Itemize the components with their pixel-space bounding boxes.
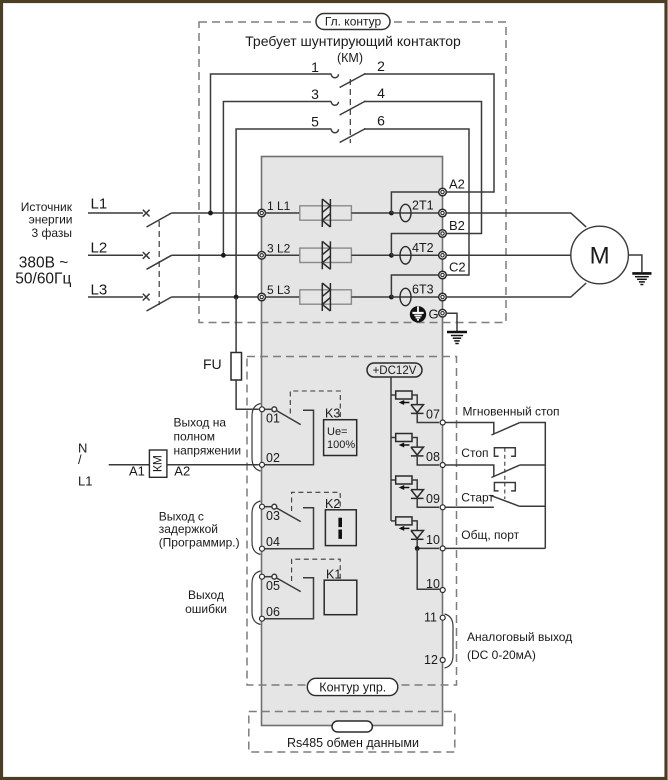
svg-text:4: 4: [377, 85, 385, 101]
svg-text:3 фазы: 3 фазы: [31, 226, 72, 240]
svg-text:КМ: КМ: [150, 455, 164, 472]
svg-text:5 L3: 5 L3: [267, 283, 291, 297]
svg-text:Выход: Выход: [188, 588, 224, 602]
svg-text:4T2: 4T2: [412, 241, 434, 255]
svg-text:05: 05: [266, 579, 280, 593]
svg-text:100%: 100%: [327, 439, 355, 451]
svg-text:6: 6: [377, 113, 385, 129]
svg-text:6T3: 6T3: [412, 283, 434, 297]
svg-text:/: /: [78, 452, 82, 467]
svg-text:09: 09: [426, 492, 440, 506]
svg-text:A2: A2: [174, 464, 190, 479]
svg-text:Общ, порт: Общ, порт: [461, 528, 519, 542]
svg-text:04: 04: [266, 535, 280, 549]
svg-text:G: G: [429, 307, 439, 322]
svg-text:Выход на: Выход на: [174, 416, 227, 430]
svg-text:энергии: энергии: [29, 213, 73, 227]
svg-text:(Программир.): (Программир.): [159, 536, 240, 550]
svg-text:Контур упр.: Контур упр.: [319, 681, 386, 695]
svg-text:(КМ): (КМ): [337, 51, 363, 65]
svg-text:Стоп: Стоп: [461, 446, 488, 460]
svg-text:5: 5: [311, 114, 319, 130]
svg-text:FU: FU: [203, 356, 222, 372]
svg-text:380В ~: 380В ~: [19, 255, 69, 272]
svg-text:L3: L3: [91, 282, 108, 299]
svg-text:L1: L1: [78, 474, 92, 489]
svg-text:(DC 0-20мА): (DC 0-20мА): [467, 648, 536, 662]
svg-text:Аналоговый выход: Аналоговый выход: [467, 630, 572, 644]
svg-text:B2: B2: [449, 218, 465, 233]
svg-text:11: 11: [424, 611, 437, 625]
svg-text:A2: A2: [449, 177, 465, 192]
svg-text:C2: C2: [449, 260, 466, 275]
svg-text:10: 10: [426, 533, 440, 547]
svg-text:12: 12: [424, 653, 438, 667]
svg-text:Гл. контур: Гл. контур: [325, 15, 382, 29]
svg-text:03: 03: [266, 509, 280, 523]
svg-text:Мгновенный стоп: Мгновенный стоп: [463, 405, 560, 419]
svg-text:A1: A1: [129, 464, 145, 479]
svg-text:2T1: 2T1: [412, 199, 434, 213]
svg-text:L1: L1: [91, 196, 108, 213]
svg-text:K1: K1: [326, 568, 341, 582]
svg-text:3: 3: [311, 86, 319, 102]
svg-text:1 L1: 1 L1: [267, 199, 291, 213]
svg-text:M: M: [590, 243, 610, 270]
svg-text:50/60Гц: 50/60Гц: [15, 271, 71, 288]
svg-text:2: 2: [377, 58, 385, 74]
svg-text:K3: K3: [325, 407, 340, 421]
svg-text:08: 08: [426, 450, 440, 464]
svg-text:напряжении: напряжении: [174, 443, 242, 457]
svg-text:+DC12V: +DC12V: [373, 365, 417, 377]
svg-text:задержкой: задержкой: [159, 522, 218, 536]
svg-text:Rs485 обмен данными: Rs485 обмен данными: [287, 736, 419, 750]
svg-text:02: 02: [266, 451, 280, 465]
svg-text:K2: K2: [325, 497, 340, 511]
svg-text:07: 07: [426, 407, 440, 421]
svg-text:L2: L2: [91, 240, 108, 257]
svg-text:Ue=: Ue=: [327, 426, 348, 438]
svg-text:Требует шунтирующий контактор: Требует шунтирующий контактор: [245, 33, 461, 49]
svg-text:ошибки: ошибки: [185, 602, 227, 616]
svg-text:3 L2: 3 L2: [267, 241, 291, 255]
svg-text:Старт: Старт: [461, 490, 494, 504]
svg-text:полном: полном: [174, 430, 215, 444]
svg-text:1: 1: [311, 59, 319, 75]
svg-text:10: 10: [426, 577, 440, 591]
svg-text:06: 06: [266, 605, 280, 619]
svg-text:01: 01: [266, 412, 280, 426]
